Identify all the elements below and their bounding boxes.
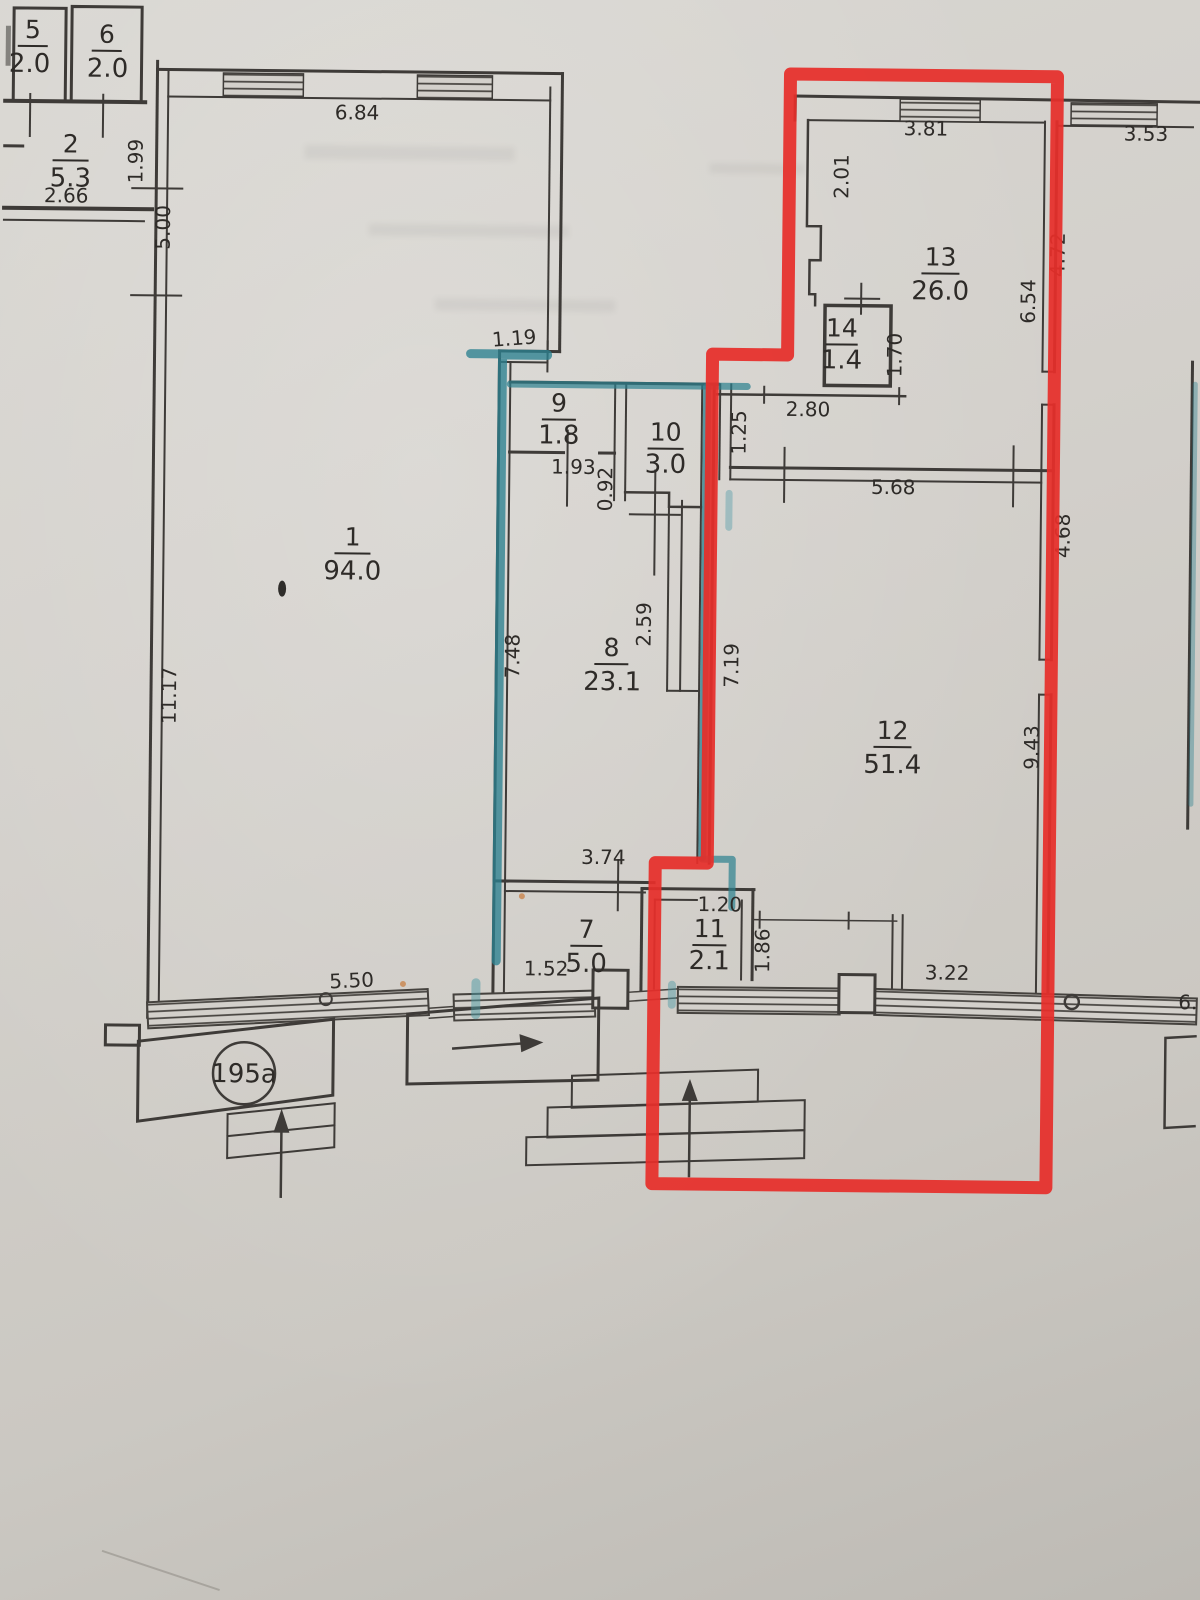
room-6-number: 6	[99, 20, 115, 49]
dim-room9-width: 1.93	[551, 454, 596, 478]
wall-segment	[806, 120, 822, 305]
entrance-arrow-icon	[689, 1093, 690, 1176]
floor-plan-svg: 1 94.0 2 5.3 5 2.0 6 2.0 7 5.0 8 23.1 9 …	[0, 0, 1200, 1600]
dim-room2-right-lower: 5.00	[151, 205, 175, 250]
room-1-area: 94.0	[323, 556, 381, 587]
scanned-floor-plan-page: 1 94.0 2 5.3 5 2.0 6 2.0 7 5.0 8 23.1 9 …	[0, 0, 1200, 1600]
dim-room12-right-lower: 9.43	[1019, 725, 1043, 770]
wall-segment	[680, 501, 682, 691]
dim-room2-right-upper: 1.99	[123, 139, 147, 184]
dim-room14-right: 1.70	[882, 333, 906, 378]
porch-step	[526, 1127, 804, 1168]
dim-room7-top: 3.74	[581, 845, 626, 869]
dim-room9-offset: 0.92	[593, 467, 617, 512]
entrance-arrow-head	[519, 1034, 543, 1052]
room-8-area: 23.1	[583, 667, 641, 698]
dim-top-wall-room1: 6.84	[335, 100, 380, 124]
wall-segment	[4, 208, 152, 210]
room-1-number: 1	[345, 522, 361, 551]
entrance-arrow-head	[273, 1109, 289, 1133]
dim-room12-top: 5.68	[871, 475, 916, 499]
dim-top-wall-room13: 3.81	[904, 116, 949, 140]
wall-segment	[719, 384, 720, 479]
wall-segment	[148, 61, 158, 1017]
room-9-area: 1.8	[538, 420, 580, 450]
room-11-area: 2.1	[688, 946, 730, 976]
wall-segment	[1042, 122, 1045, 372]
wall-segment	[892, 915, 893, 989]
wall-segment	[667, 507, 669, 691]
room-6-area: 2.0	[87, 54, 129, 84]
dim-room11-right: 1.86	[750, 928, 774, 973]
dim-corridor-jog: 1.19	[491, 324, 537, 351]
window	[417, 75, 492, 99]
entrance-arrow-icon	[281, 1123, 282, 1197]
wall-segment	[641, 888, 642, 990]
room-10-number: 10	[650, 418, 682, 447]
dim-room7-bottom-left: 1.52	[524, 956, 569, 980]
window	[147, 989, 429, 1028]
unit-label: 195a	[211, 1059, 277, 1090]
wall-segment	[510, 452, 564, 453]
dim-room8-left: 7.48	[500, 634, 524, 679]
dim-tick	[630, 514, 680, 515]
dim-room12-left-upper: 1.25	[727, 410, 751, 455]
dim-room11-top: 1.20	[697, 892, 742, 916]
room-10-area: 3.0	[645, 449, 687, 479]
wall-segment	[158, 69, 563, 73]
dim-bottom-wall-left: 5.50	[329, 968, 374, 994]
dim-room8-niche: 2.59	[632, 602, 656, 647]
wall-segment	[795, 96, 1200, 102]
window	[678, 987, 840, 1015]
wall-segment	[548, 87, 551, 353]
pillar	[105, 1025, 139, 1045]
wall-segment	[505, 891, 645, 892]
wall-segment	[1165, 1036, 1196, 1128]
room-12-area: 51.4	[863, 750, 921, 781]
dim-tick	[654, 471, 655, 575]
pencil-stray-line	[102, 1551, 220, 1590]
dim-room13-right-inner: 6.54	[1016, 279, 1040, 324]
wall-segment	[494, 881, 654, 883]
entrance-arrow-icon	[453, 1042, 525, 1049]
dim-top-wall-right: 3.53	[1124, 121, 1169, 145]
dim-room2-width: 2.66	[44, 183, 89, 207]
room-14-number: 14	[826, 313, 858, 342]
dim-room14-bottom: 2.80	[786, 397, 831, 421]
room-5-area: 2.0	[9, 49, 51, 79]
floor-plan: 1 94.0 2 5.3 5 2.0 6 2.0 7 5.0 8 23.1 9 …	[0, 6, 1200, 1600]
wall-segment	[1039, 405, 1042, 660]
ink-dot	[278, 581, 286, 597]
wall-segment	[902, 915, 903, 989]
dim-room8-right-strip: 7.19	[719, 643, 743, 688]
room-14-area: 1.4	[821, 345, 863, 375]
dim-tick	[784, 448, 785, 502]
dim-room13-left-upper: 2.01	[829, 154, 853, 199]
room-13-area: 26.0	[911, 276, 969, 307]
red-marker-outline	[652, 73, 1058, 1188]
room-12-number: 12	[877, 716, 909, 745]
dim-tick	[132, 188, 182, 189]
wall-segment	[5, 101, 145, 102]
dim-room1-left: 11.17	[157, 667, 182, 725]
room-5-number: 5	[25, 15, 41, 44]
room-9-number: 9	[551, 388, 567, 417]
dim-tick	[131, 295, 181, 296]
orange-speck	[400, 981, 406, 987]
wall-segment	[730, 467, 1053, 470]
room-11-number: 11	[694, 914, 726, 943]
paper-artifacts	[303, 145, 805, 314]
room-7-area: 5.0	[565, 949, 607, 979]
window	[223, 73, 303, 97]
dim-line	[755, 920, 897, 921]
door-threshold	[429, 1006, 454, 1008]
window	[874, 989, 1197, 1025]
orange-speck	[519, 893, 525, 899]
wall-segment	[4, 220, 144, 221]
room-2-number: 2	[63, 129, 79, 158]
entrance-arrow-head	[682, 1079, 698, 1101]
room-7-number: 7	[578, 915, 594, 944]
dim-bottom-right-cut: 6.	[1178, 990, 1197, 1014]
dim-line	[717, 394, 905, 396]
wall-segment	[625, 383, 626, 500]
room-8-number: 8	[603, 633, 619, 662]
pillar	[839, 975, 875, 1013]
dim-bottom-wall-right: 3.22	[925, 960, 970, 984]
room-13-number: 13	[925, 242, 957, 271]
wall-segment	[625, 492, 701, 507]
dim-tick	[1013, 446, 1014, 506]
door-threshold	[429, 1016, 454, 1018]
